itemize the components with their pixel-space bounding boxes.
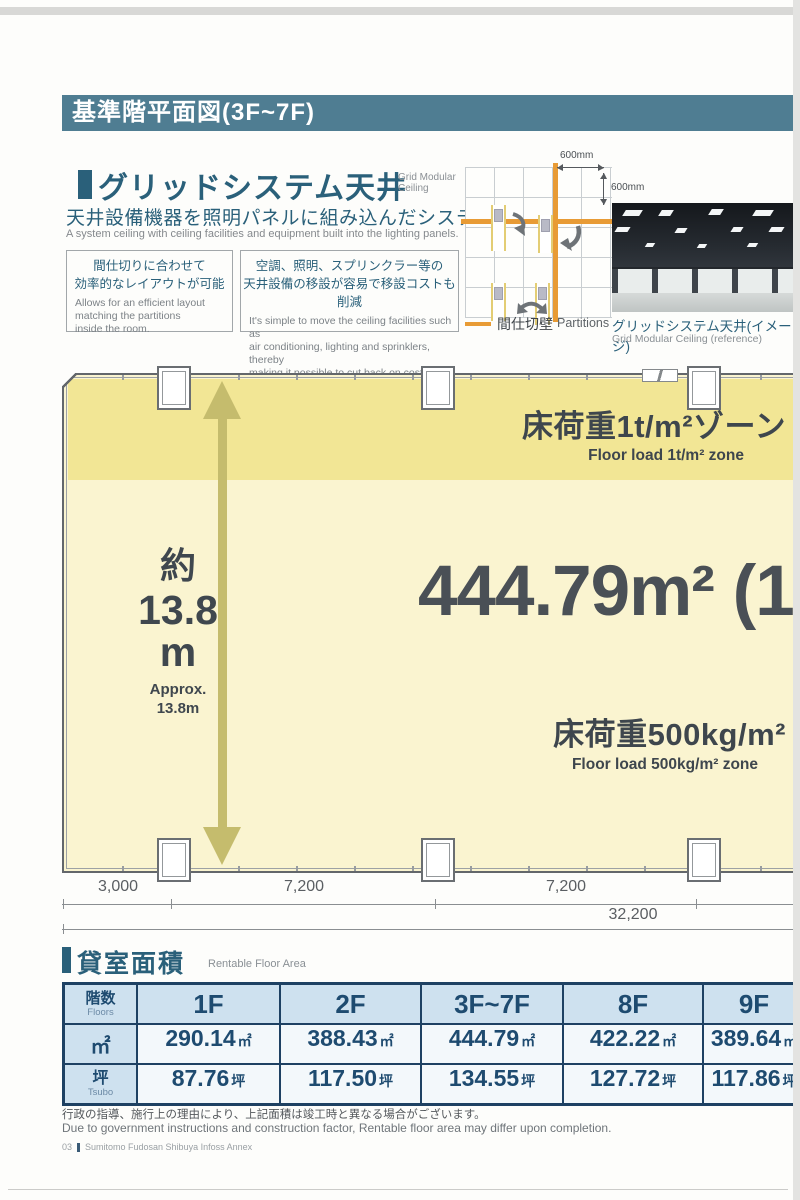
grid-dim-horizontal-arrow (557, 167, 604, 168)
move-arrow-icon (509, 212, 531, 238)
page-footer: 03 Sumitomo Fudosan Shibuya Infoss Annex (62, 1142, 252, 1152)
depth-label: 約 13.8 m Approx. 13.8m (120, 545, 236, 718)
depth-approx-jp: 約 (120, 545, 236, 587)
table-cell-tsubo-2f: 117.50坪 (281, 1065, 420, 1103)
partition-legend-jp: 間仕切壁 (497, 314, 553, 334)
grid-dim-vertical-arrow (603, 173, 604, 205)
tsubo-unit: 坪 (231, 1071, 245, 1091)
photo-light (614, 227, 630, 232)
sqm-value: 444.79 (449, 1025, 519, 1052)
sqm-unit: ㎡ (238, 1031, 252, 1051)
photo-light (708, 209, 724, 215)
photo-caption-en: Grid Modular Ceiling (reference) (612, 333, 762, 345)
vertical-measure-arrow-top (203, 381, 241, 419)
dimension-tick (171, 899, 172, 909)
photo-light (645, 243, 655, 247)
disclaimer-en: Due to government instructions and const… (62, 1121, 611, 1135)
grid-ceiling-diagram (465, 167, 612, 318)
tsubo-unit: 坪 (662, 1071, 676, 1091)
row-header-tsubo: 坪 Tsubo (65, 1065, 136, 1103)
corner-chamfer (62, 373, 77, 388)
depth-label-en: Approx. 13.8m (120, 680, 236, 718)
dim-segment-3: 7,200 (526, 878, 606, 896)
sqm-unit: ㎡ (521, 1031, 535, 1051)
table-cell-sqm-8f: 422.22㎡ (564, 1025, 702, 1063)
page-number: 03 (62, 1142, 72, 1152)
column-marker (421, 366, 455, 410)
brochure-page: 基準階平面図(3F~7F) グリッドシステム天井 Grid Modular Ce… (0, 0, 800, 1200)
ceiling-section-title: グリッドシステム天井 (98, 163, 407, 207)
tsubo-value: 117.50 (308, 1065, 377, 1092)
table-header-1f: 1F (138, 985, 279, 1023)
table-cell-tsubo-8f: 127.72坪 (564, 1065, 702, 1103)
ceiling-section-title-en-line1: Grid Modular (398, 172, 456, 183)
page-edge-top (0, 7, 800, 15)
zone-1t-label-jp: 床荷重1t/m²ゾーン (522, 401, 786, 446)
rentable-area-title-en: Rentable Floor Area (208, 958, 306, 970)
row-header-sqm: ㎡ (65, 1025, 136, 1063)
depth-en-line1: Approx. (150, 681, 207, 698)
photo-floor (612, 293, 793, 312)
column-marker (421, 838, 455, 882)
dim-total: 32,200 (585, 906, 681, 924)
sqm-unit: ㎡ (662, 1031, 676, 1051)
depth-value: 13.8 (120, 587, 236, 633)
disclaimer-jp: 行政の指導、施行上の理由により、上記面積は竣工時と異なる場合がございます。 (62, 1106, 486, 1122)
photo-light (674, 228, 687, 233)
tsubo-header-jp: 坪 (92, 1070, 108, 1087)
depth-en-line2: 13.8m (157, 700, 200, 717)
benefit-box-layout: 間仕切りに合わせて 効率的なレイアウトが可能 Allows for an eff… (66, 250, 233, 332)
photo-light (730, 227, 743, 232)
table-header-floors: 階数 Floors (65, 985, 136, 1023)
page-title-bar: 基準階平面図(3F~7F) (62, 95, 793, 131)
tsubo-unit: 坪 (521, 1071, 535, 1091)
photo-light (768, 227, 784, 232)
sqm-value: 388.43 (307, 1025, 377, 1052)
photo-light (658, 210, 674, 216)
footer-marker (77, 1143, 80, 1152)
table-header-8f: 8F (564, 985, 702, 1023)
partition-line-swatch (465, 322, 491, 326)
dimension-tick (435, 899, 436, 909)
move-arrow-icon (517, 297, 547, 315)
table-cell-tsubo-9f: 117.86坪 (704, 1065, 800, 1103)
grid-dim-vertical: 600mm (611, 182, 644, 193)
ceiling-fixture (491, 205, 506, 251)
dim-segment-1: 3,000 (78, 878, 158, 896)
floors-header-jp: 階数 (85, 991, 115, 1007)
dimension-line-total (62, 929, 793, 930)
page-edge-right (793, 0, 800, 1200)
table-cell-sqm-3f7f: 444.79㎡ (422, 1025, 562, 1063)
floor-plan: 約 13.8 m Approx. 13.8m 床荷重1t/m²ゾーン Floor… (62, 373, 800, 873)
table-header-3f7f: 3F~7F (422, 985, 562, 1023)
dimension-tick (63, 899, 64, 909)
rentable-area-table: 階数 Floors 1F 2F 3F~7F 8F 9F ㎡ 290.14㎡ 38… (62, 982, 800, 1106)
photo-light (697, 244, 707, 248)
wall-hatch (642, 369, 678, 382)
sqm-value: 389.64 (711, 1025, 781, 1052)
tsubo-unit: 坪 (379, 1071, 393, 1091)
grid-dim-horizontal: 600mm (560, 150, 593, 161)
benefit-box-layout-jp: 間仕切りに合わせて 効率的なレイアウトが可能 (67, 257, 232, 293)
dimension-tick (63, 924, 64, 934)
tsubo-value: 87.76 (172, 1065, 230, 1092)
photo-light (752, 210, 774, 216)
tsubo-value: 134.55 (449, 1065, 519, 1092)
tsubo-header-en: Tsubo (88, 1087, 113, 1098)
photo-light (622, 210, 643, 216)
move-arrow-icon (557, 223, 583, 253)
page-edge-bottom (8, 1189, 788, 1190)
column-marker (157, 366, 191, 410)
depth-unit: m (120, 633, 236, 671)
sqm-unit: ㎡ (380, 1031, 394, 1051)
column-marker (157, 838, 191, 882)
tsubo-value: 117.86 (711, 1065, 780, 1092)
zone-500kg-label-jp: 床荷重500kg/m² (553, 709, 786, 754)
rentable-area-title: 貸室面積 (77, 944, 185, 980)
table-header-2f: 2F (281, 985, 420, 1023)
section-marker (78, 170, 92, 199)
vertical-measure-arrow-bottom (203, 827, 241, 865)
floor-area-label: 444.79m² (1 (418, 551, 794, 632)
dim-segment-2: 7,200 (264, 878, 344, 896)
ceiling-fixture (538, 215, 553, 253)
table-header-9f: 9F (704, 985, 800, 1023)
table-cell-sqm-9f: 389.64㎡ (704, 1025, 800, 1063)
ceiling-subtitle-en: A system ceiling with ceiling facilities… (66, 228, 459, 240)
table-cell-tsubo-1f: 87.76坪 (138, 1065, 279, 1103)
sqm-value: 422.22 (590, 1025, 660, 1052)
ceiling-section-title-en-line2: Ceiling (398, 183, 429, 194)
table-cell-tsubo-3f7f: 134.55坪 (422, 1065, 562, 1103)
dimension-tick (696, 899, 697, 909)
column-marker (687, 838, 721, 882)
page-title: 基準階平面図(3F~7F) (72, 99, 315, 126)
table-cell-sqm-2f: 388.43㎡ (281, 1025, 420, 1063)
benefit-box-layout-en: Allows for an efficient layout matching … (75, 297, 232, 335)
ceiling-section-title-en: Grid Modular Ceiling (398, 172, 456, 194)
table-cell-sqm-1f: 290.14㎡ (138, 1025, 279, 1063)
sqm-value: 290.14 (165, 1025, 235, 1052)
photo-windows (612, 267, 793, 293)
zone-1t-label-en: Floor load 1t/m² zone (588, 447, 744, 465)
tsubo-value: 127.72 (590, 1065, 660, 1092)
partition-legend-en: Partitions (557, 316, 609, 330)
photo-light (747, 243, 758, 247)
zone-500kg-label-en: Floor load 500kg/m² zone (572, 756, 758, 774)
brand-name: Sumitomo Fudosan Shibuya Infoss Annex (85, 1142, 252, 1152)
section-marker (62, 947, 71, 973)
benefit-box-relocation: 空調、照明、スプリンクラー等の 天井設備の移設が容易で移設コストも削減 It's… (240, 250, 459, 332)
ceiling-photo (612, 203, 793, 312)
benefit-box-relocation-jp: 空調、照明、スプリンクラー等の 天井設備の移設が容易で移設コストも削減 (241, 257, 458, 311)
floors-header-en: Floors (87, 1007, 113, 1018)
